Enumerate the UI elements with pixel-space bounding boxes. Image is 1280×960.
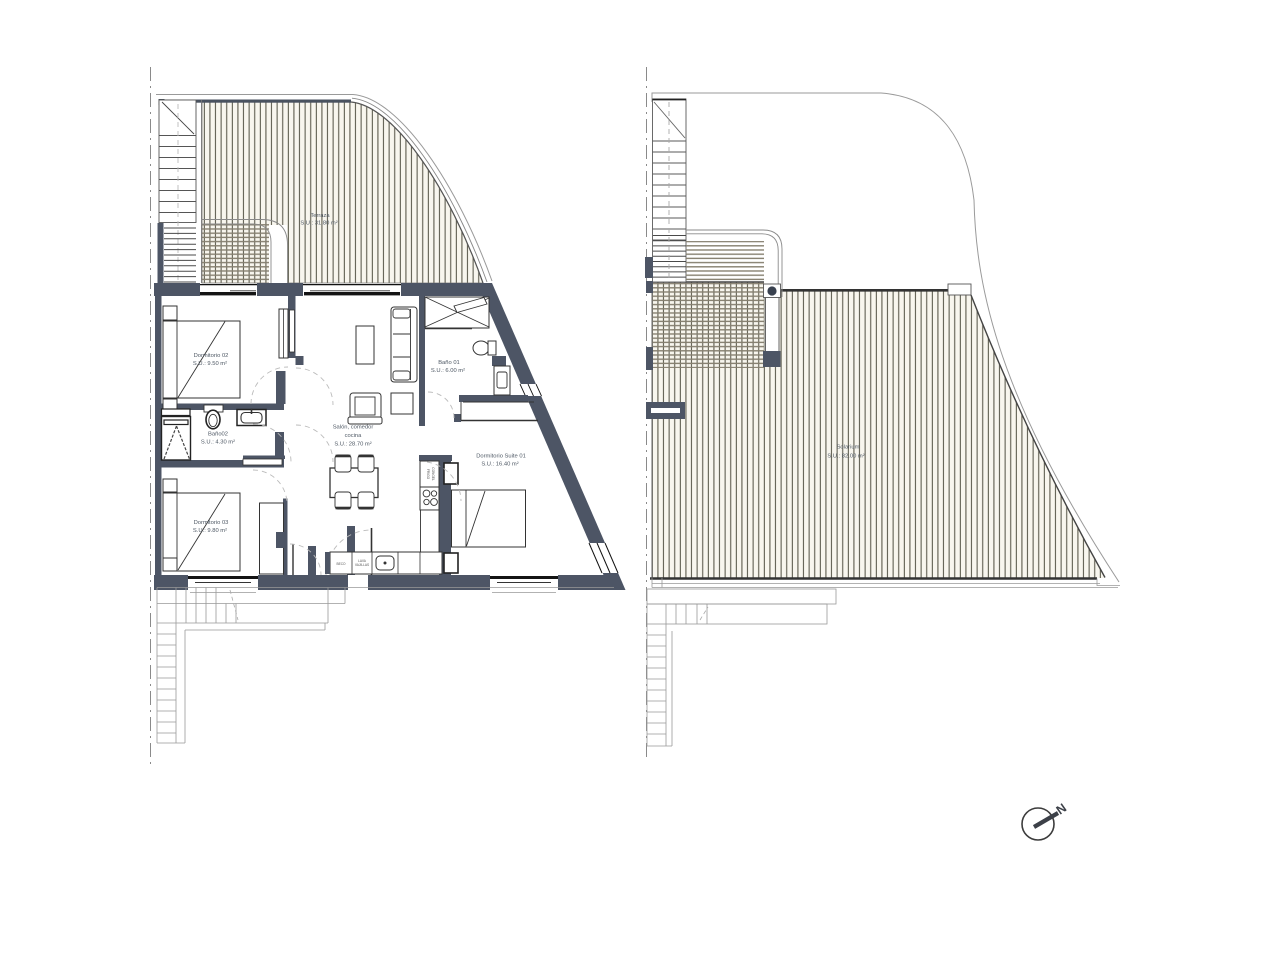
svg-text:S.U.: 4.30 m²: S.U.: 4.30 m² xyxy=(201,440,235,446)
svg-text:S.U.: 9.50 m²: S.U.: 9.50 m² xyxy=(193,361,227,367)
svg-text:Baño 01: Baño 01 xyxy=(438,360,460,366)
svg-text:S.U.: 28.70 m²: S.U.: 28.70 m² xyxy=(334,442,371,448)
svg-text:Dormitorio 03: Dormitorio 03 xyxy=(194,520,229,526)
svg-text:Dormitorio 02: Dormitorio 02 xyxy=(194,353,229,359)
svg-text:S.U.: 6.00 m²: S.U.: 6.00 m² xyxy=(431,368,465,374)
svg-text:Solarium: Solarium xyxy=(837,445,860,451)
svg-text:S.U.: 16.40 m²: S.U.: 16.40 m² xyxy=(481,462,518,468)
svg-text:Dormitorio Suite 01: Dormitorio Suite 01 xyxy=(476,454,526,460)
svg-text:VAJILLAS: VAJILLAS xyxy=(355,563,369,567)
svg-text:Terraza: Terraza xyxy=(310,213,330,219)
svg-text:Salón, comedor: Salón, comedor xyxy=(333,425,374,431)
svg-text:CONGEL: CONGEL xyxy=(431,467,435,481)
svg-text:S.U.: 31.80 m²: S.U.: 31.80 m² xyxy=(300,221,337,227)
svg-text:S.U.: 9.80 m²: S.U.: 9.80 m² xyxy=(193,528,227,534)
svg-text:cocina: cocina xyxy=(345,433,363,439)
svg-text:S.U.: 82.00 m²: S.U.: 82.00 m² xyxy=(827,454,864,460)
svg-text:BECO: BECO xyxy=(336,562,346,566)
svg-text:Baño02: Baño02 xyxy=(208,432,228,438)
svg-text:FRIGO: FRIGO xyxy=(426,469,430,480)
